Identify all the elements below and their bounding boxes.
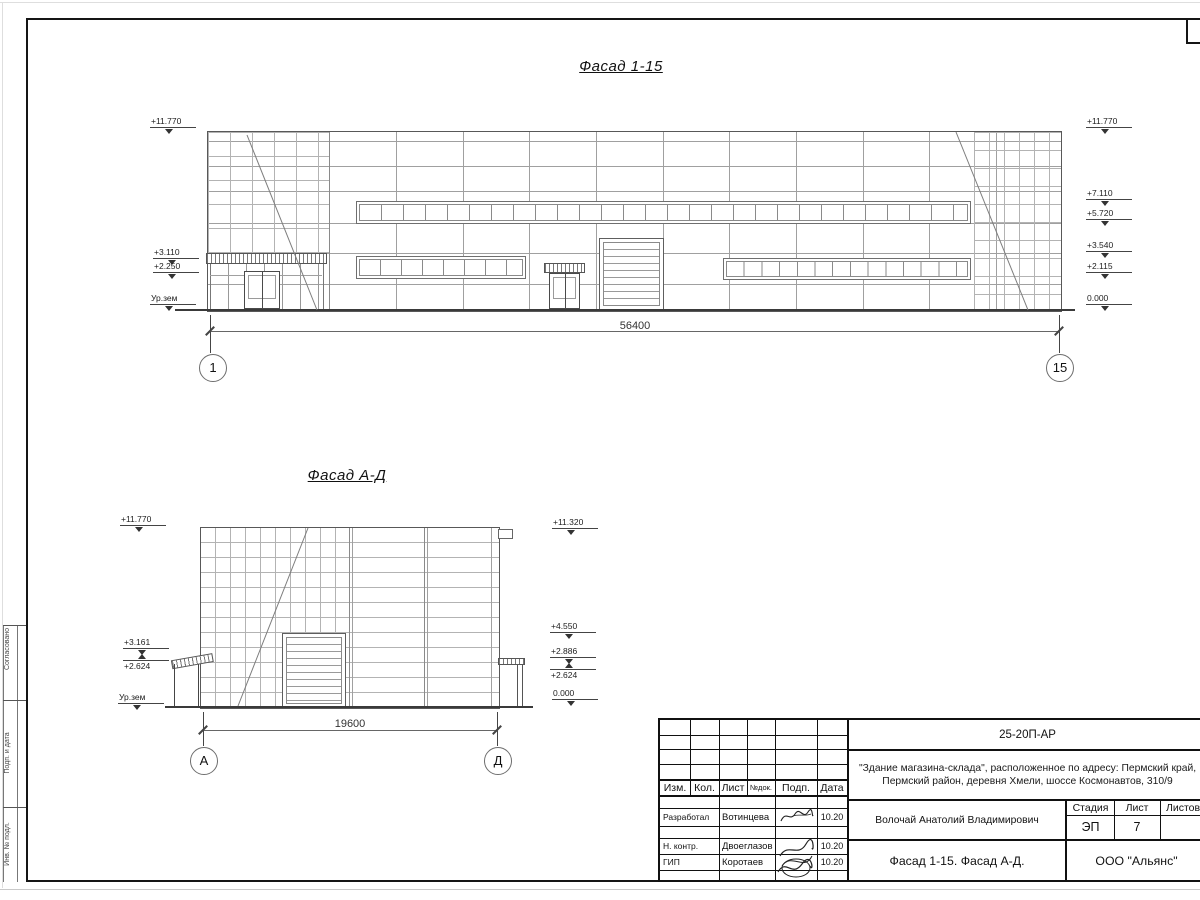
facade-1-15-title: Фасад 1-15: [541, 58, 701, 75]
row-name: Коротаев: [720, 854, 777, 870]
left-entrance-door: [244, 271, 280, 309]
sheets-label: Листов: [1160, 800, 1200, 815]
elev-mark: +3.540: [1086, 241, 1132, 258]
elev-mark: Ур.зем: [118, 693, 164, 710]
elev-mark: Ур.зем: [150, 294, 196, 311]
row-date: 10.20: [817, 854, 847, 870]
left-panel-grid: [208, 132, 329, 253]
elev-mark: +11.770: [150, 117, 196, 134]
company-name: ООО "Альянс": [1067, 841, 1200, 880]
chief-name: Волочай Анатолий Владимирович: [849, 801, 1065, 839]
axis-circle-15: 15: [1046, 354, 1074, 382]
row-name: Вотинцева: [720, 808, 777, 826]
elev-mark: +3.161: [123, 638, 169, 655]
elev-mark: +2.115: [1086, 262, 1132, 279]
elev-mark: +11.770: [120, 515, 166, 532]
drawing-name: Фасад 1-15. Фасад А-Д.: [849, 841, 1065, 880]
project-description: "Здание магазина-склада", расположенное …: [849, 751, 1200, 799]
facade-a-d-title: Фасад А-Д: [267, 467, 427, 484]
axis-circle-a: А: [190, 747, 218, 775]
lower-right-window-band: [723, 258, 971, 280]
col-data: Дата: [817, 780, 847, 795]
elev-mark: +7.110: [1086, 189, 1132, 206]
col-ndok: №док.: [747, 780, 775, 795]
row-name: Двоеглазов: [720, 838, 777, 854]
dimension-56400: 56400: [585, 320, 685, 332]
stage-label: Стадия: [1067, 800, 1114, 815]
frame-corner-box: [1186, 18, 1200, 44]
facade-1-15-building: [207, 131, 1062, 312]
elev-mark: 0.000: [552, 689, 598, 706]
axis-circle-d: Д: [484, 747, 512, 775]
elev-mark: +11.770: [1086, 117, 1132, 134]
dimension-19600: 19600: [300, 718, 400, 730]
col-podp: Подп.: [775, 780, 817, 795]
row-date: 10.20: [817, 808, 847, 826]
upper-window-band: [356, 201, 971, 224]
signature-gip: [772, 838, 818, 882]
elev-mark: +2.886: [550, 647, 596, 664]
elev-mark: +2.250: [153, 262, 199, 279]
side-strip-label: Инв. № подл.: [4, 808, 16, 880]
sheet-label: Лист: [1114, 800, 1160, 815]
roller-gate-side: [282, 633, 346, 708]
elev-mark: +2.624: [550, 663, 596, 680]
page-edge-bottom: [0, 889, 1200, 890]
col-list: Лист: [719, 780, 747, 795]
ground-line-a-d: [165, 706, 533, 708]
roof-vent: [498, 529, 513, 539]
ground-line-1-15: [175, 309, 1075, 311]
middle-canopy: [544, 263, 585, 273]
side-strip-label: Подп. и дата: [4, 717, 16, 789]
row-role: Н. контр.: [661, 838, 721, 854]
elev-mark: +4.550: [550, 622, 596, 639]
frame-left: [26, 18, 28, 882]
stage-value: ЭП: [1067, 816, 1114, 838]
page-edge-top: [0, 2, 1200, 3]
right-panel-grid: [974, 132, 1061, 311]
title-block: Изм. Кол. Лист №док. Подп. Дата Разработ…: [658, 718, 1200, 882]
row-date: 10.20: [817, 838, 847, 854]
roller-gate: [599, 238, 664, 310]
left-canopy: [206, 253, 327, 264]
col-kol: Кол.: [690, 780, 719, 795]
row-role: Разработал: [661, 808, 721, 826]
frame-top: [26, 18, 1200, 20]
elev-mark: +5.720: [1086, 209, 1132, 226]
col-izm: Изм.: [660, 780, 690, 795]
dimension-line-a-d: [203, 730, 498, 731]
drawing-sheet: Согласовано Подп. и дата Инв. № подл. Фа…: [0, 0, 1200, 900]
facade-a-d-building: [200, 527, 500, 709]
row-role: ГИП: [661, 854, 721, 870]
elev-mark: +2.624: [123, 654, 169, 671]
side-strip-label: Согласовано: [4, 613, 16, 685]
signature-votintseva: [777, 807, 816, 826]
lower-left-window-band: [356, 256, 526, 279]
elev-mark: 0.000: [1086, 294, 1132, 311]
sheet-value: 7: [1114, 816, 1160, 838]
doc-number: 25-20П-АР: [849, 720, 1200, 749]
middle-entrance-door: [549, 273, 580, 309]
elev-mark: +11.320: [552, 518, 598, 535]
side-right-canopy: [498, 658, 525, 665]
axis-circle-1: 1: [199, 354, 227, 382]
